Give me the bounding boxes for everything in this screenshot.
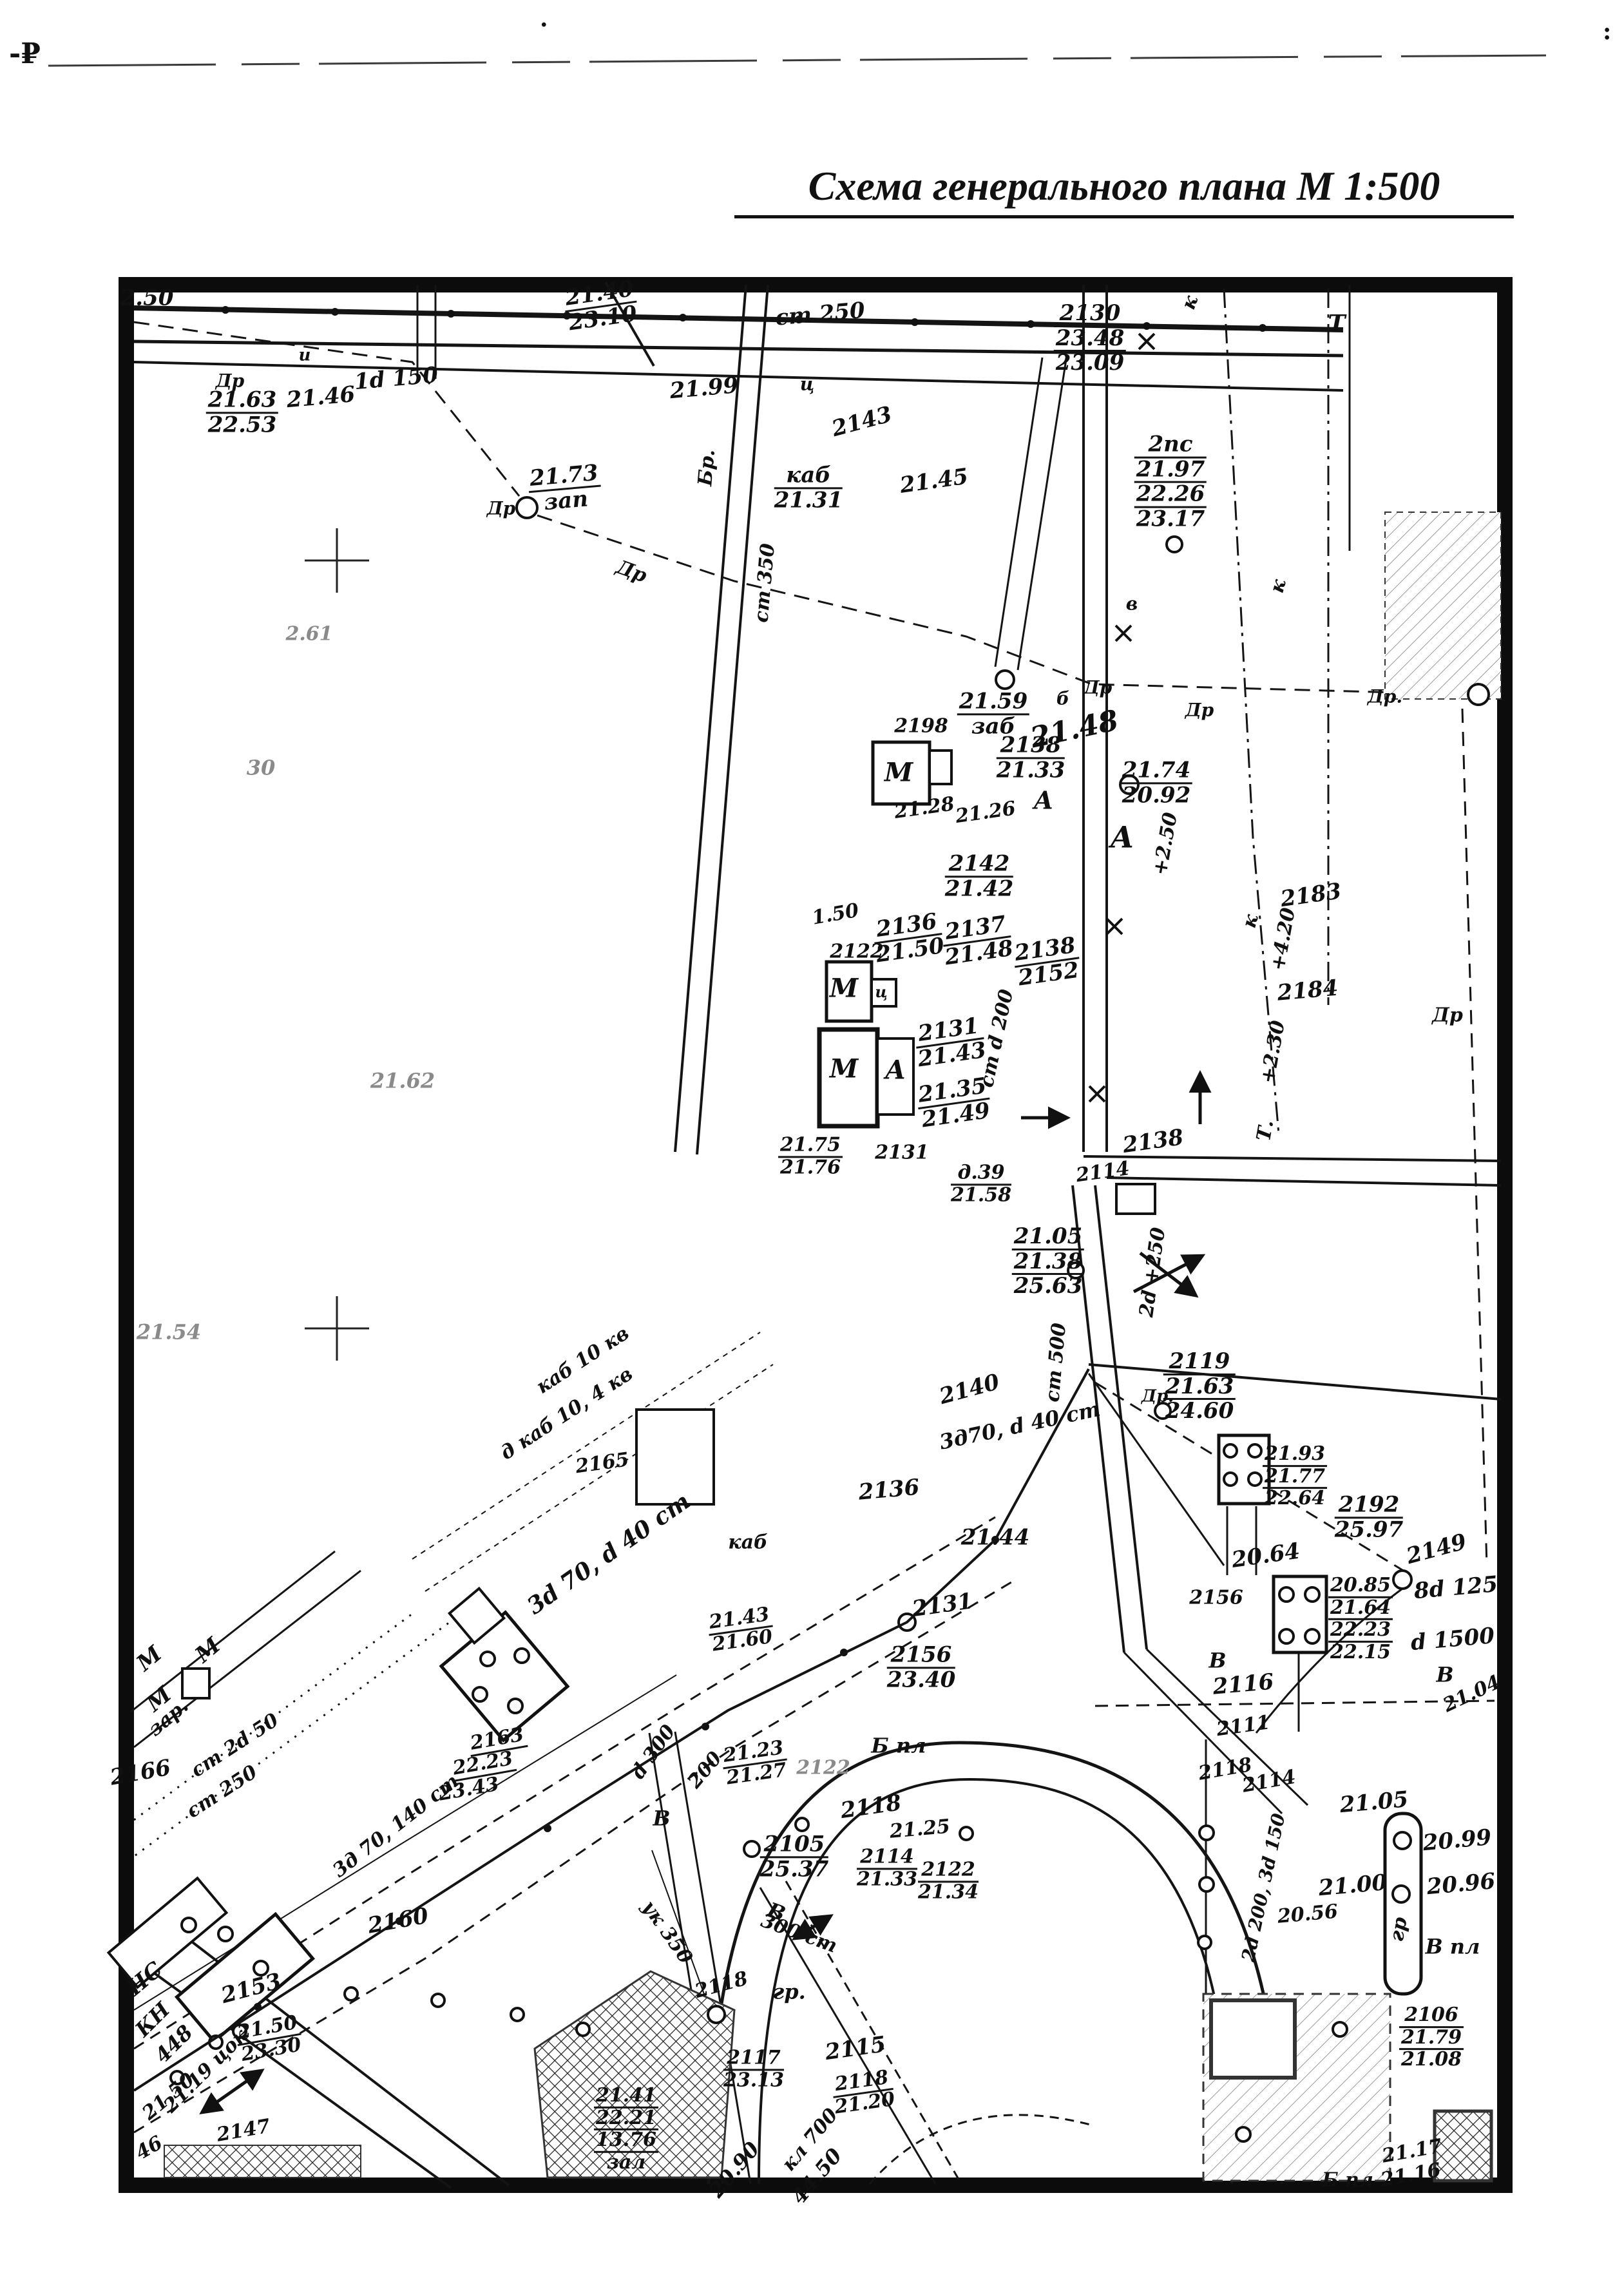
map-label: 20.99 [1422,1826,1492,1855]
map-label: В [653,1808,670,1830]
map-label: d 300 [628,1722,679,1783]
map-label: 21.46 [285,383,356,412]
map-label: 3д 70, 140 ст [330,1772,463,1882]
map-label: 21.3521.49 [915,1075,993,1131]
map-label: 21.00 [1317,1871,1388,1900]
map-label: 2165 [575,1450,631,1477]
map-label: к [1240,912,1263,930]
map-label: 1.50 [810,901,860,929]
map-label: 21.6322.53 [206,388,278,436]
map-label: 21.99 [669,374,739,403]
map-label: 2156 [1189,1589,1243,1609]
map-label: 1d 150 [354,364,439,394]
map-label: 2118 [839,1792,903,1823]
map-label: 21.7521.76 [778,1135,843,1177]
map-label: 21.9321.7722.64 [1263,1444,1327,1509]
map-label: 46 [133,2133,166,2163]
map-label: 21382152 [1011,934,1082,990]
map-label: 21.2321.27 [720,1738,790,1788]
map-label: 21.5023.30 [234,2013,305,2065]
map-label: 212221.34 [918,1860,979,1902]
map-label: каб21.31 [774,464,843,511]
map-label: ст 350 [752,542,778,623]
map-label: +2.30 [1258,1019,1288,1085]
map-label: 21.62 [370,1071,435,1092]
map-label: 2138 [1122,1126,1185,1157]
map-label: 2111 [1216,1713,1272,1740]
map-label: 213821.33 [997,734,1065,781]
map-label: М [830,976,858,1002]
map-label: 2131 [911,1590,975,1621]
map-label: НС [123,1958,167,2000]
map-label: 210525.37 [760,1833,828,1880]
map-label: Др [1185,702,1214,720]
map-label: ук 350 [638,1898,696,1968]
map-label: 20.64 [1230,1540,1301,1571]
map-label: Бр. [696,448,718,487]
map-label: 2131 [875,1144,929,1163]
map-label: Др [613,557,649,586]
map-label: 2143 [830,403,894,441]
map-label: 210621.7921.08 [1399,2005,1464,2070]
map-label: в [1126,595,1138,614]
map-label: и [299,347,311,365]
map-label: 20.90 [705,2138,763,2201]
map-label: к [1268,577,1290,595]
map-label: гр [1388,1916,1411,1944]
map-label: А [885,1058,906,1084]
map-labels-layer: 2.50Др21.6322.53и21.461d 15021.4023.1021… [0,0,1624,2278]
map-label: А [1110,823,1134,853]
map-label: 2122 [796,1759,850,1779]
map-label: б [1056,690,1069,709]
map-label: В [1436,1665,1453,1686]
map-label: 2147 [215,2117,272,2146]
map-label: 300 ст [758,1911,839,1957]
map-label: М [884,760,913,787]
map-label: В [1208,1651,1226,1672]
map-label: Др [1084,679,1112,698]
map-label: 2166 [108,1757,172,1790]
map-label: +2.50 [1151,811,1181,877]
map-label: ц [875,984,887,1000]
map-label: 21.45 [899,465,970,497]
map-label: гр. [772,1982,806,2003]
map-label: М [830,1057,858,1083]
map-label: 21.25 [889,1817,951,1843]
map-label: Т [1328,312,1346,336]
map-label: Т. [1254,1118,1277,1143]
map-label: 2118 [693,1969,750,2002]
map-label: 21.0521.3825.63 [1012,1225,1084,1297]
map-label: 2.61 [285,625,332,645]
map-label: 213023.4823.09 [1054,302,1126,374]
map-label: 2183 [1279,880,1343,911]
map-label: 21.26 [954,799,1017,827]
map-label: Др. [1142,1388,1174,1406]
map-label: 21.05 [1339,1788,1409,1817]
map-label: 2.50 [120,287,174,310]
map-label: 21.44 [961,1527,1029,1549]
map-label: Др [1432,1006,1463,1026]
map-label: Др [487,500,515,519]
map-label: Др. [1368,688,1402,707]
map-label: 211421.33 [857,1847,917,1889]
map-label: 219225.97 [1335,1493,1403,1540]
map-label: 20.56 [1277,1902,1339,1928]
map-label: 2160 [366,1905,430,1938]
map-label: Б пл [871,1736,926,1757]
map-label: 3д70, d 40 ст [937,1399,1102,1453]
map-label: каб [728,1533,767,1553]
map-label: 21.7420.92 [1120,759,1192,806]
map-label: Б пл [1322,2171,1373,2191]
map-label: М [133,1643,166,1676]
map-label: к [1179,293,1202,312]
map-label: 21.73зап [527,462,603,515]
map-label: 21.59заб [957,690,1029,737]
map-label: 2184 [1276,977,1339,1005]
map-label: ст 250 [774,300,866,330]
map-label: В пл [1426,1937,1480,1958]
map-label: +4.20 [1268,906,1299,972]
map-label: 3d 70, d 40 ст [523,1489,694,1618]
map-label: 21.4122.2113.76зал [594,2086,658,2172]
map-label: 200 [685,1748,726,1792]
map-label: 213721.48 [940,912,1015,968]
map-label: 2d +250 [1137,1227,1169,1319]
map-label: 211821.20 [830,2067,896,2118]
map-label: 2153 [219,1970,283,2007]
map-label: А [1034,789,1054,814]
map-label: 213121.43 [913,1014,988,1070]
map-label: ст 500 [1043,1322,1069,1402]
map-label: 20.8521.6422.2322.15 [1328,1576,1393,1662]
map-label: 2пс21.9722.2623.17 [1134,434,1207,531]
map-label: 2116 [1212,1671,1274,1699]
map-label: 214221.42 [945,852,1013,899]
map-label: 215623.40 [887,1643,955,1690]
map-label: d 1500 [1410,1625,1496,1654]
map-label: ц [800,376,815,394]
map-label: 2d 200, 3d 150 [1239,1812,1289,1964]
map-label: 30 [247,758,276,779]
map-label: 20.96 [1426,1870,1496,1899]
map-label: 2149 [1404,1531,1469,1568]
map-label: М [191,1634,224,1667]
map-label: 21.4321.60 [706,1605,776,1655]
map-label: 2136 [857,1477,920,1504]
map-label: д.3921.58 [951,1163,1011,1205]
scanned-plan-page: -₽ · : Схема генерального плана М 1:500 [0,0,1624,2278]
map-label: 21.28 [893,794,955,822]
map-label: 21.4023.10 [562,278,640,334]
map-label: 211723.13 [723,2048,784,2090]
map-label: 213621.50 [871,910,946,966]
map-label: 2115 [824,2033,888,2064]
map-label: 2114 [1075,1159,1131,1186]
map-label: 2198 [894,717,948,737]
map-label: 211921.6324.60 [1163,1350,1236,1422]
map-label: 2140 [937,1371,1002,1408]
map-label: 8d 125 [1413,1573,1499,1603]
map-label: 21.54 [137,1322,201,1343]
